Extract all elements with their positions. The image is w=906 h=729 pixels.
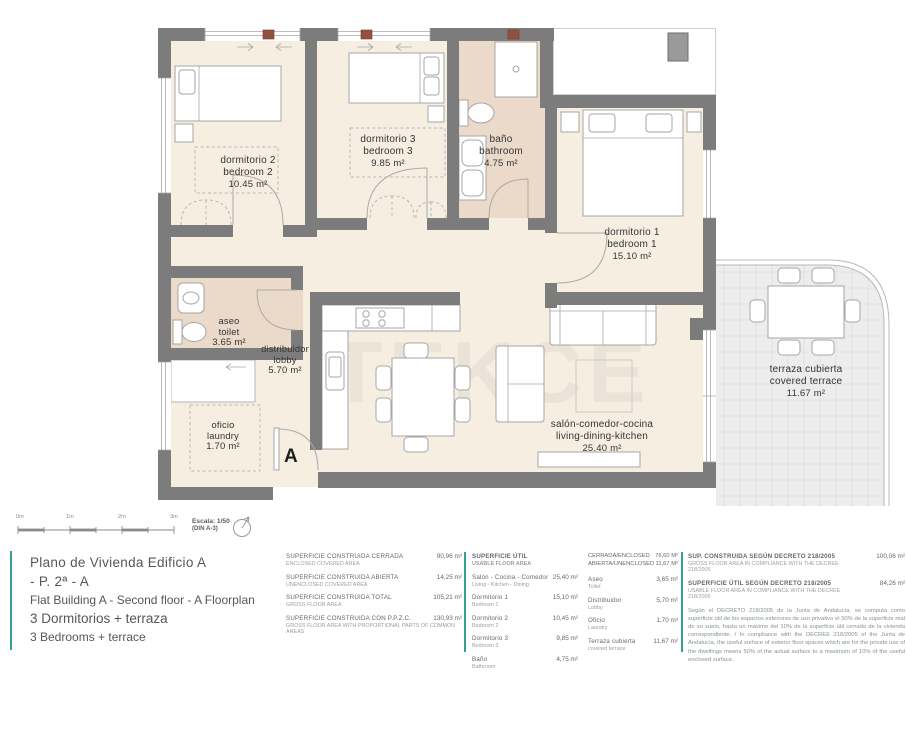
divider-line <box>681 552 683 652</box>
bedroom1-window <box>703 150 716 218</box>
decree-note: Según el DECRETO 218/2005 de la Junta de… <box>688 607 905 664</box>
area-table-decree: SUP. CONSTRUIDA SEGÚN DECRETO 218/2005 1… <box>688 553 905 664</box>
table-row: Distribuidor 5,70 m² Lobby <box>588 597 678 611</box>
north-arrow-icon <box>230 511 256 541</box>
table-row: SUPERFICIE CONSTRUIDA ABIERTA 14,25 m² U… <box>286 574 462 588</box>
table-row: Dormitorio 2 10,45 m² Bedroom 2 <box>472 615 578 629</box>
plan-title-es: Plano de Vivienda Edificio A - P. 2ª - A <box>30 553 206 591</box>
adjacent-void <box>554 29 716 95</box>
scale-tick-label: 2m <box>118 514 126 520</box>
room-label-living: salón-comedor-cocina living-dining-kitch… <box>512 419 692 455</box>
room-label-bedroom-3: dormitorio 3 bedroom 3 9.85 m² <box>318 134 458 170</box>
summary-row: ABIERTA/UNENCLOSED 11,67 m² <box>588 561 678 569</box>
plan-subtitle-en: 3 Bedrooms + terrace <box>30 628 298 646</box>
area-table-util: SUPERFICIE ÚTIL USABLE FLOOR AREA Salón … <box>472 553 578 676</box>
table-row: SUPERFICIE CONSTRUIDA CON P.P.Z.C. 130,9… <box>286 615 462 635</box>
area-table-util-2: CERRADA/ENCLOSED 76,60 m² ABIERTA/UNENCL… <box>588 553 678 658</box>
title-block: Plano de Vivienda Edificio A - P. 2ª - A… <box>10 551 298 650</box>
shaft <box>668 33 688 61</box>
room-label-bedroom-1: dormitorio 1 bedroom 1 15.10 m² <box>562 227 702 263</box>
room-label-lobby: distribuidor lobby 5.70 m² <box>215 344 355 376</box>
scale-bar: 0m 1m 2m 3m <box>16 514 191 540</box>
table-row: SUPERFICIE CONSTRUIDA CERRADA 90,96 m² E… <box>286 553 462 567</box>
table-row: Terraza cubierta 11,67 m² covered terrac… <box>588 638 678 652</box>
room-label-terrace: terraza cubierta covered terrace 11.67 m… <box>726 364 886 400</box>
room-label-bathroom: baño bathroom 4.75 m² <box>442 134 560 170</box>
scale-bar-graphic <box>16 523 191 537</box>
room-label-bedroom-2: dormitorio 2 bedroom 2 10.45 m² <box>178 155 318 191</box>
divider-line <box>464 552 466 652</box>
plan-subtitle-es: 3 Dormitorios + terraza <box>30 609 247 628</box>
summary-row: CERRADA/ENCLOSED 76,60 m² <box>588 553 678 561</box>
room-label-laundry: oficio laundry 1.70 m² <box>163 420 283 452</box>
table-row: Dormitorio 3 9,85 m² Bedroom 3 <box>472 635 578 649</box>
table-row: Oficio 1,70 m² Laundry <box>588 617 678 631</box>
table-row: Baño 4,75 m² Bathroom <box>472 656 578 670</box>
table-row: Dormitorio 1 15,10 m² Bedroom 1 <box>472 594 578 608</box>
table-row: SUPERFICIE ÚTIL SEGÚN DECRETO 218/2005 8… <box>688 580 905 600</box>
scale-tick-label: 1m <box>66 514 74 520</box>
table-row: Salón - Cocina - Comedor 25,40 m² Living… <box>472 574 578 588</box>
scale-tick-label: 3m <box>170 514 178 520</box>
scale-caption: Escala: 1/50 (DIN A-3) <box>192 518 230 532</box>
area-table-construida: SUPERFICIE CONSTRUIDA CERRADA 90,96 m² E… <box>286 553 462 641</box>
plan-title-en: Flat Building A - Second floor - A Floor… <box>30 591 298 609</box>
table-row: Aseo 3,65 m² Toilet <box>588 576 678 590</box>
section-letter: A <box>284 446 298 468</box>
table-row: SUPERFICIE CONSTRUIDA TOTAL 105,21 m² GR… <box>286 594 462 608</box>
table-header: SUPERFICIE ÚTIL USABLE FLOOR AREA <box>472 553 578 567</box>
floorplan-sheet: .w{fill:#7c7c7c;} .furn{fill:#ffffff;str… <box>0 0 906 729</box>
scale-tick-label: 0m <box>16 514 24 520</box>
table-row: SUP. CONSTRUIDA SEGÚN DECRETO 218/2005 1… <box>688 553 905 573</box>
